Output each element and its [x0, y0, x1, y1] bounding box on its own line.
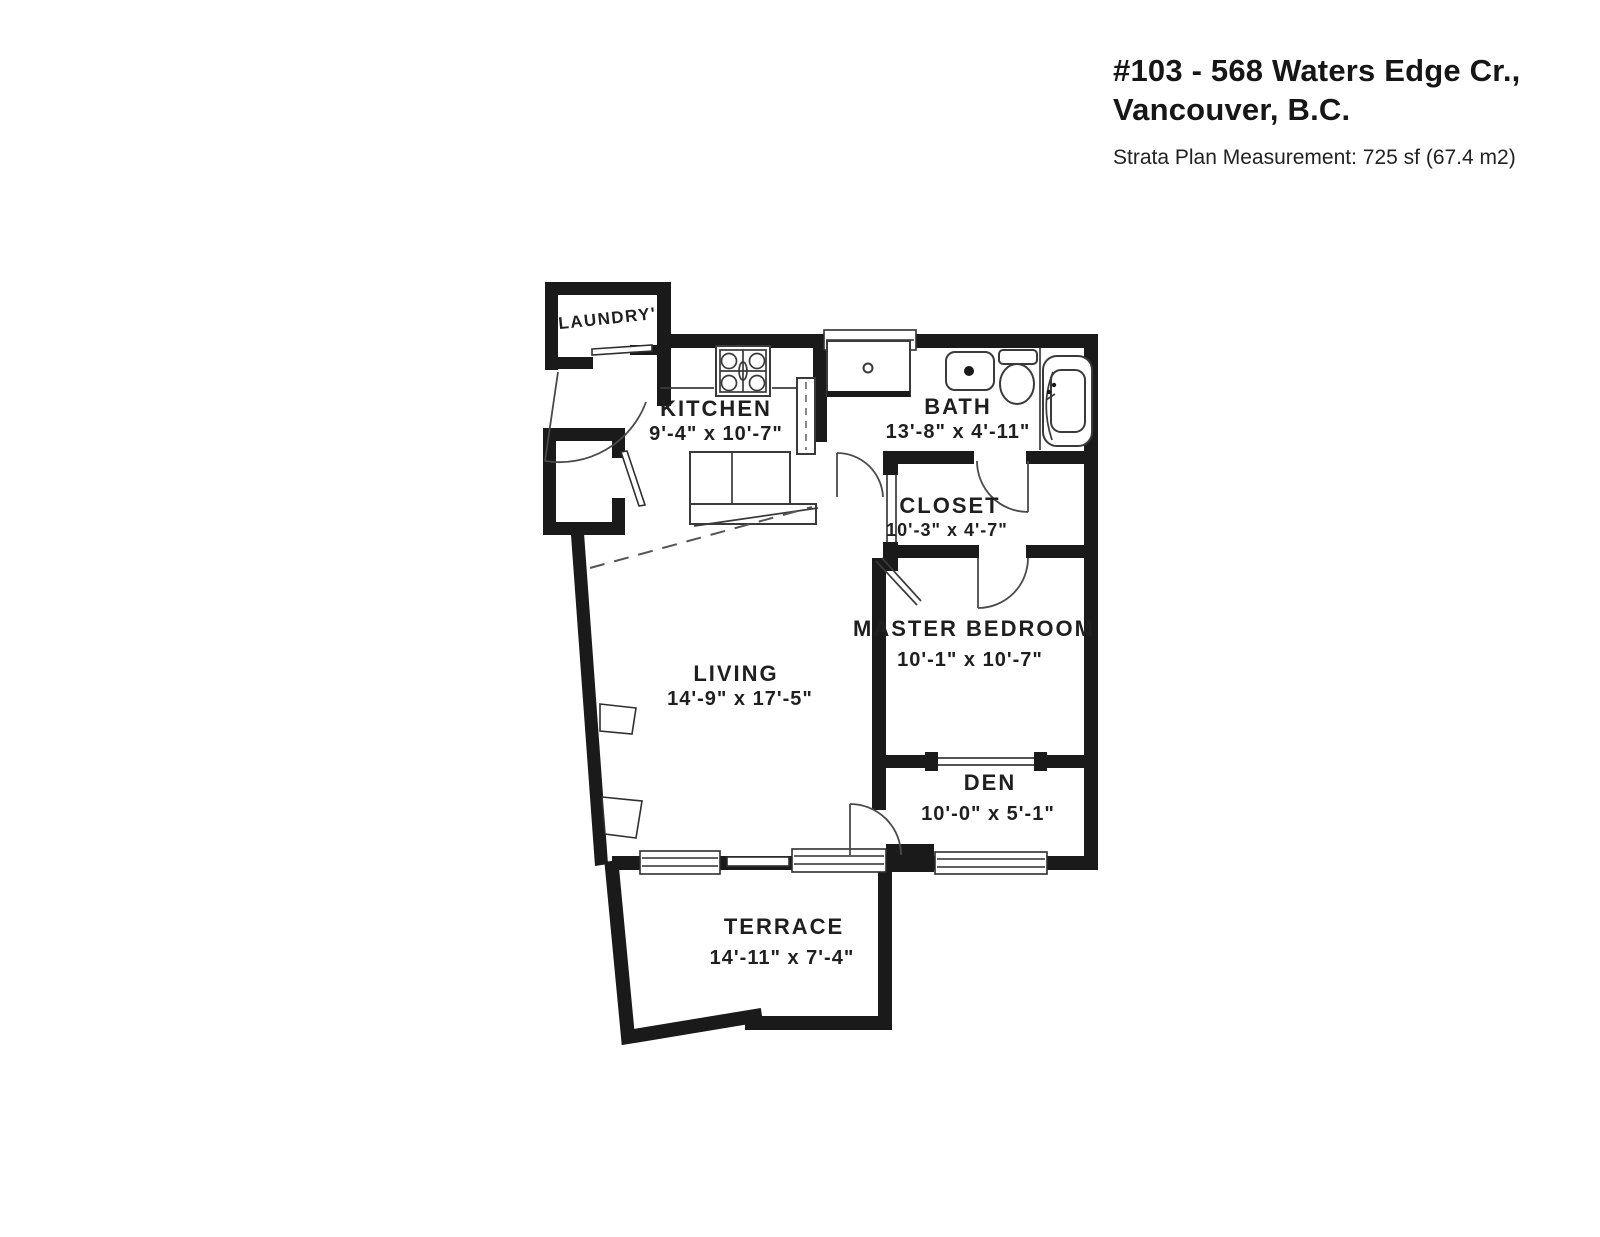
- master-den-post-right: [1034, 752, 1047, 771]
- room-dims-master-bedroom: 10'-1" x 10'-7": [897, 649, 1043, 671]
- room-dims-terrace: 14'-11" x 7'-4": [710, 947, 855, 969]
- room-label-living: LIVING: [693, 661, 778, 686]
- room-label-den: DEN: [964, 770, 1016, 795]
- laundry-top-wall: [545, 282, 671, 295]
- room-dims-closet: 10'-3" x 4'-7": [886, 520, 1008, 540]
- stove-icon: [716, 346, 770, 396]
- kitchen-island: [690, 504, 816, 524]
- closet-bottom-wall-right: [1026, 545, 1098, 558]
- living-west-wall: [571, 533, 608, 866]
- bathtub-icon: [1043, 356, 1092, 446]
- floor-plan-drawing: LAUNDRY' KITCHEN 9'-4" x 10'-7" BATH 13'…: [0, 0, 1600, 1237]
- room-dims-den: 10'-0" x 5'-1": [921, 803, 1055, 825]
- vestibule-left-wall: [543, 428, 556, 535]
- room-label-closet: CLOSET: [899, 493, 1000, 518]
- vestibule-closet-door: [621, 451, 645, 506]
- toilet-icon: [999, 350, 1037, 404]
- den-window: [935, 852, 1047, 874]
- room-label-kitchen: KITCHEN: [660, 396, 772, 421]
- bath-door-swing: [837, 453, 883, 497]
- closet-top-wall-right: [1026, 451, 1098, 464]
- master-door-swing: [978, 558, 1028, 608]
- master-left-wall: [872, 558, 886, 768]
- terrace-right-wall: [752, 858, 885, 1023]
- room-dims-kitchen: 9'-4" x 10'-7": [649, 423, 783, 445]
- room-dims-bath: 13'-8" x 4'-11": [886, 421, 1031, 443]
- wall-niche: [600, 704, 636, 734]
- vestibule-right-wall-bottom: [612, 498, 625, 535]
- room-label-bath: BATH: [924, 394, 991, 419]
- room-label-laundry: LAUNDRY': [557, 304, 657, 333]
- living-window-right: [792, 849, 886, 872]
- bath-sink-icon: [946, 352, 994, 390]
- closet-left-post-top: [883, 451, 898, 475]
- entry-door-swing: [545, 372, 646, 462]
- bath-vanity: [827, 341, 910, 397]
- laundry-left-wall: [545, 282, 558, 370]
- master-den-wall-left: [872, 755, 927, 768]
- floor-plan-page: { "page": { "background": "#ffffff" }, "…: [0, 0, 1600, 1237]
- master-den-post-left: [925, 752, 938, 771]
- kitchen-counter: [690, 452, 790, 504]
- closet-bottom-wall-left: [883, 545, 979, 558]
- room-label-master-bedroom: MASTER BEDROOM: [853, 616, 1095, 641]
- master-den-wall-right: [1045, 755, 1098, 768]
- laundry-bottom-wall: [545, 357, 593, 369]
- den-left-wall: [872, 768, 886, 810]
- room-label-terrace: TERRACE: [724, 914, 844, 939]
- living-sliding-panel: [727, 857, 789, 866]
- room-dims-living: 14'-9" x 17'-5": [667, 688, 813, 710]
- living-window-left: [640, 851, 720, 874]
- wall-niche: [602, 797, 642, 838]
- kitchen-counter-strip: [797, 378, 815, 454]
